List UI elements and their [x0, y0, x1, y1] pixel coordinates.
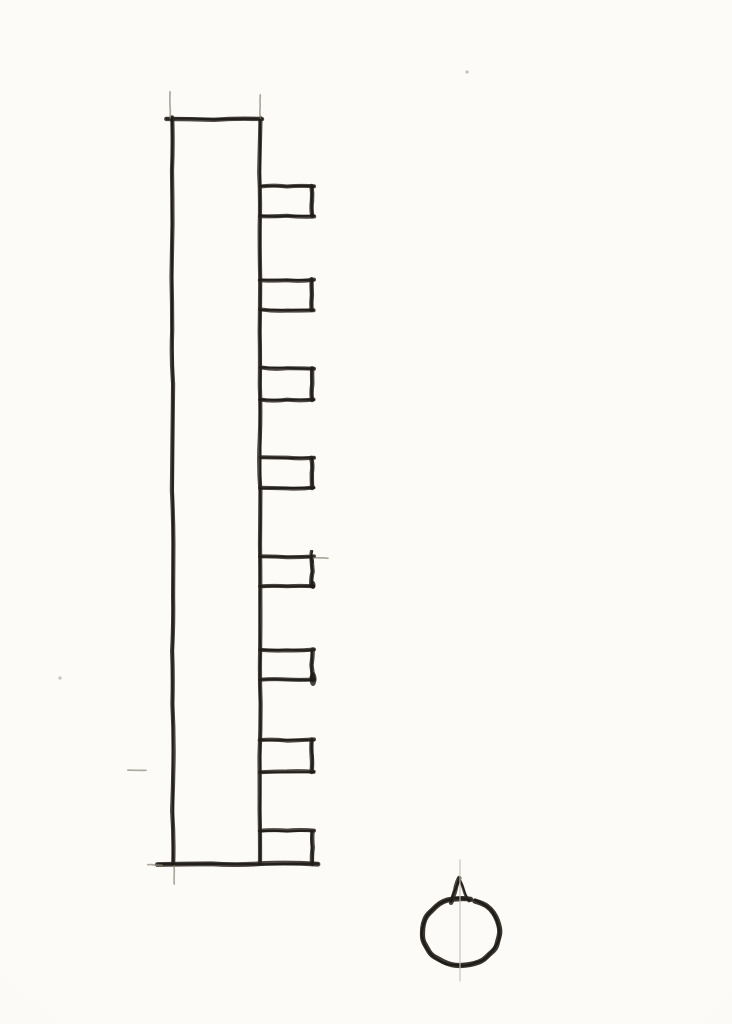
ink-blob	[311, 581, 316, 589]
ink-overshoot	[311, 551, 312, 562]
bar-bottom-edge	[158, 864, 318, 865]
tooth-bottom-edge	[260, 586, 314, 587]
tooth-top-edge	[260, 186, 314, 187]
tooth-top-edge	[260, 280, 314, 281]
bar-right-edge	[260, 119, 261, 863]
tooth-right-edge	[312, 458, 313, 488]
tooth-top-edge	[260, 650, 314, 651]
tooth-right-edge	[312, 740, 313, 772]
scanned-paper-sheet	[0, 0, 732, 1024]
tooth-top-edge	[260, 831, 314, 832]
tooth-bottom-edge	[260, 488, 314, 489]
tooth-top-edge	[260, 740, 314, 741]
construction-mark	[312, 558, 328, 559]
paper-speck	[465, 70, 468, 73]
tooth-top-edge	[260, 457, 314, 458]
construction-mark	[148, 865, 162, 866]
paper-speck	[58, 676, 61, 679]
tooth-bottom-edge	[260, 310, 314, 311]
tooth-bottom-edge	[260, 679, 314, 680]
bar-top-edge	[166, 118, 262, 119]
ink-blob	[310, 672, 317, 686]
tooth-right-edge	[312, 831, 313, 864]
pencil-sketch-drawing	[0, 0, 732, 1024]
tooth-bottom-edge	[260, 216, 314, 217]
tooth-top-edge	[260, 367, 314, 368]
tooth-right-edge	[312, 186, 313, 216]
tooth-right-edge	[312, 368, 313, 400]
